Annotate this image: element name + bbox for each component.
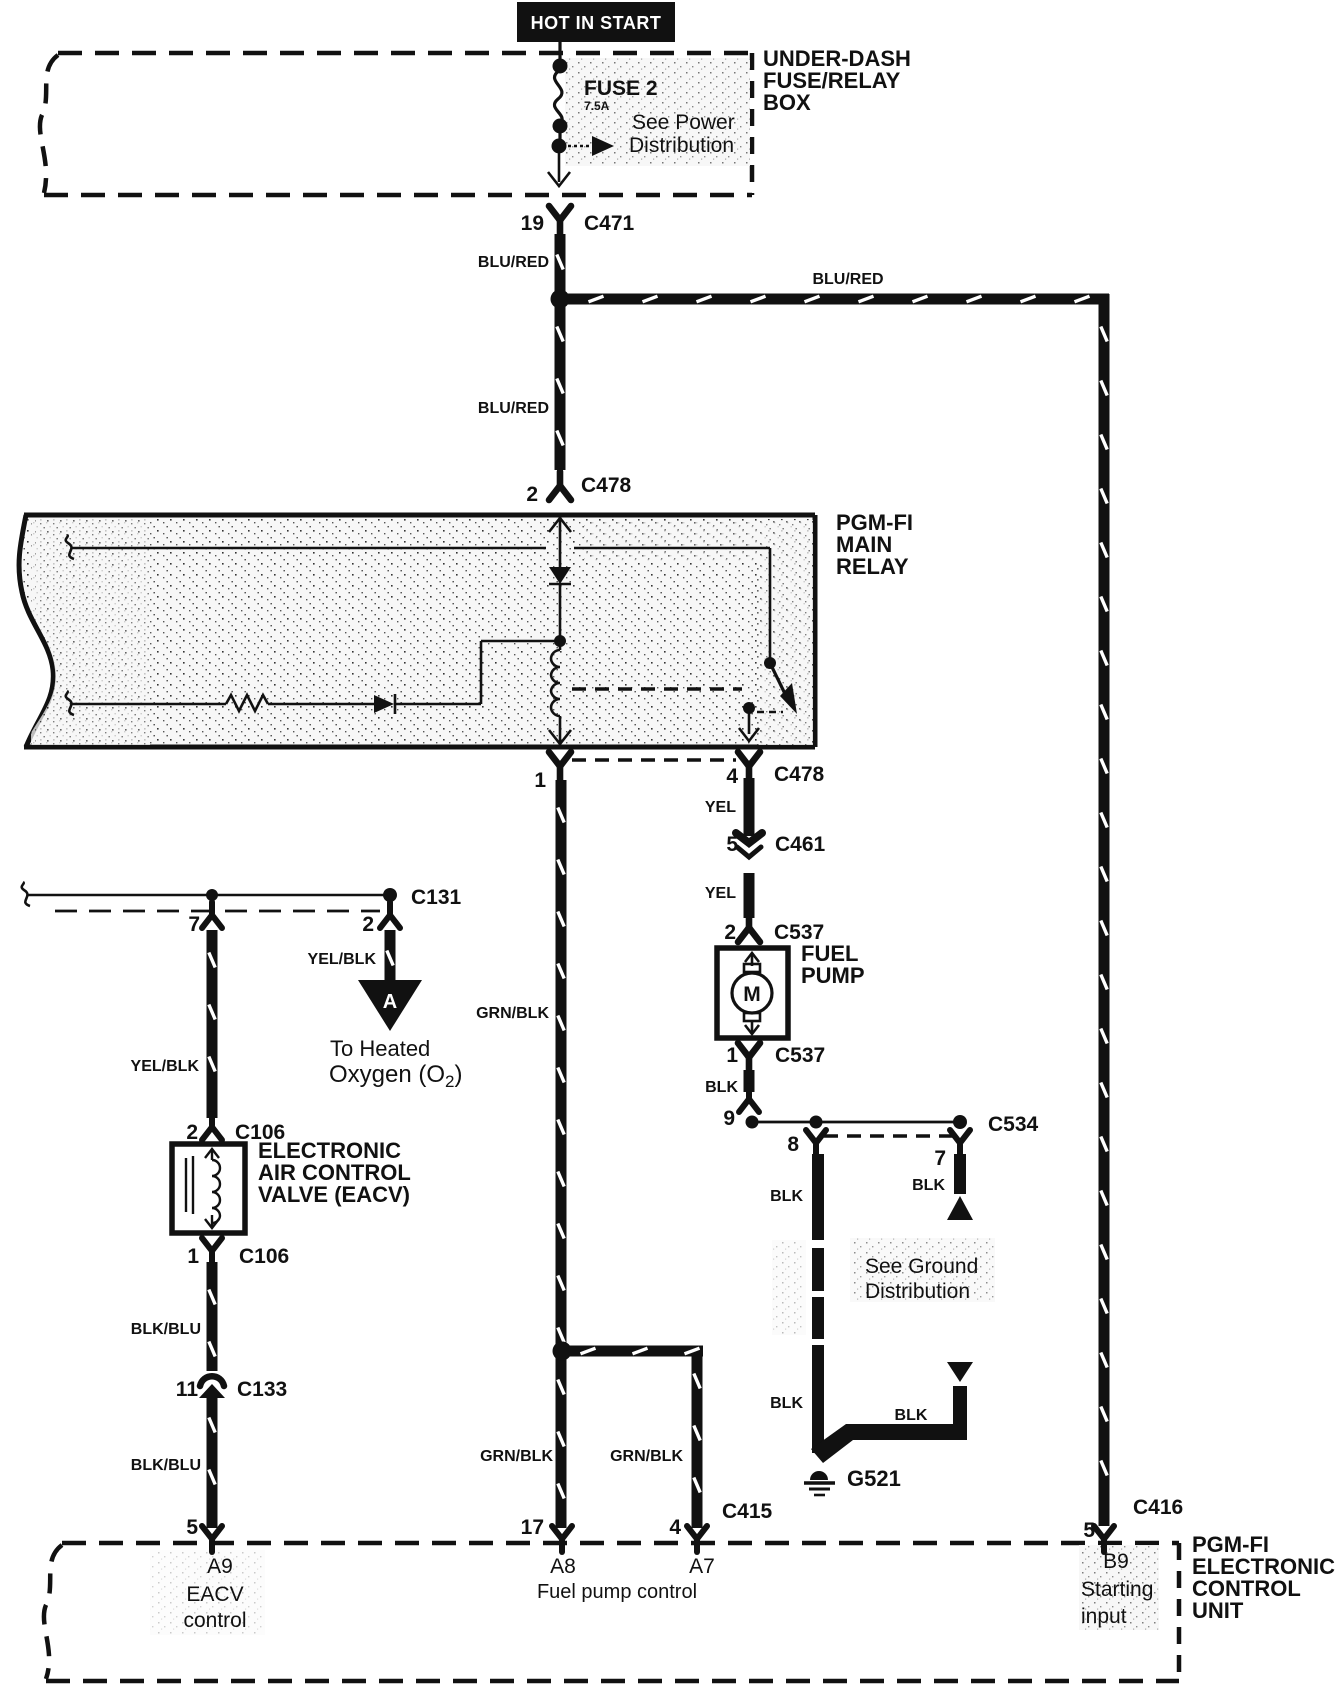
svg-text:FUSE 2: FUSE 2 [584,77,658,100]
svg-text:BLK/BLU: BLK/BLU [131,1457,201,1474]
svg-text:RELAY: RELAY [836,554,909,579]
svg-text:2: 2 [186,1121,198,1144]
svg-text:input: input [1081,1605,1127,1628]
svg-text:C415: C415 [722,1500,773,1523]
svg-text:See Ground: See Ground [865,1255,978,1278]
svg-text:BLK/BLU: BLK/BLU [131,1321,201,1338]
svg-text:5: 5 [726,833,738,856]
svg-text:4: 4 [726,765,738,788]
svg-text:7: 7 [934,1147,946,1170]
svg-text:EACV: EACV [186,1583,243,1606]
svg-text:A9: A9 [207,1555,233,1578]
svg-text:C534: C534 [988,1113,1039,1136]
svg-text:GRN/BLK: GRN/BLK [476,1005,549,1022]
svg-text:5: 5 [1083,1519,1095,1542]
svg-text:BLU/RED: BLU/RED [478,400,549,417]
svg-text:VALVE (EACV): VALVE (EACV) [258,1182,410,1207]
svg-text:YEL/BLK: YEL/BLK [308,951,377,968]
svg-text:C471: C471 [584,212,635,235]
svg-text:Distribution: Distribution [629,134,734,157]
svg-text:C461: C461 [775,833,826,856]
svg-text:19: 19 [521,212,544,235]
svg-text:control: control [183,1609,246,1632]
svg-text:A7: A7 [689,1555,715,1578]
svg-text:1: 1 [726,1044,738,1067]
svg-text:BLU/RED: BLU/RED [812,271,883,288]
svg-text:Starting: Starting [1081,1578,1153,1601]
svg-text:A8: A8 [550,1555,576,1578]
svg-text:C537: C537 [775,1044,825,1067]
svg-text:1: 1 [534,769,546,792]
svg-text:BLK: BLK [770,1395,803,1412]
svg-text:C478: C478 [774,763,825,786]
svg-text:2: 2 [526,483,538,506]
svg-text:UNIT: UNIT [1192,1598,1244,1623]
svg-text:BOX: BOX [763,90,811,115]
svg-text:Oxygen (O2): Oxygen (O2) [329,1061,463,1091]
svg-text:BLK: BLK [912,1177,945,1194]
svg-text:7.5A: 7.5A [584,99,610,113]
svg-text:1: 1 [187,1245,199,1268]
svg-text:YEL/BLK: YEL/BLK [131,1058,200,1075]
svg-text:G521: G521 [847,1466,901,1491]
svg-text:M: M [743,983,761,1006]
svg-text:17: 17 [521,1516,544,1539]
svg-text:PUMP: PUMP [801,963,865,988]
svg-text:9: 9 [723,1107,735,1130]
svg-text:YEL: YEL [705,799,736,816]
svg-text:7: 7 [188,913,200,936]
svg-text:Fuel pump control: Fuel pump control [537,1581,697,1603]
svg-text:Distribution: Distribution [865,1280,970,1303]
svg-text:A: A [383,991,397,1013]
svg-text:B9: B9 [1103,1550,1129,1573]
svg-text:C416: C416 [1133,1496,1183,1519]
svg-text:4: 4 [669,1516,681,1539]
svg-text:11: 11 [176,1378,199,1401]
svg-text:BLK: BLK [705,1079,738,1096]
svg-text:C133: C133 [237,1378,287,1401]
svg-text:GRN/BLK: GRN/BLK [480,1448,553,1465]
svg-text:BLK: BLK [895,1407,928,1424]
svg-text:8: 8 [787,1133,799,1156]
svg-text:To Heated: To Heated [330,1036,430,1061]
svg-text:See Power: See Power [632,111,735,134]
svg-text:BLK: BLK [770,1188,803,1205]
svg-text:BLU/RED: BLU/RED [478,254,549,271]
svg-text:5: 5 [186,1516,198,1539]
svg-text:GRN/BLK: GRN/BLK [610,1448,683,1465]
svg-text:C478: C478 [581,474,632,497]
svg-text:2: 2 [362,913,374,936]
svg-text:2: 2 [724,921,736,944]
svg-text:C131: C131 [411,886,462,909]
svg-text:YEL: YEL [705,885,736,902]
svg-text:C106: C106 [239,1245,289,1268]
svg-text:HOT IN START: HOT IN START [531,13,662,33]
